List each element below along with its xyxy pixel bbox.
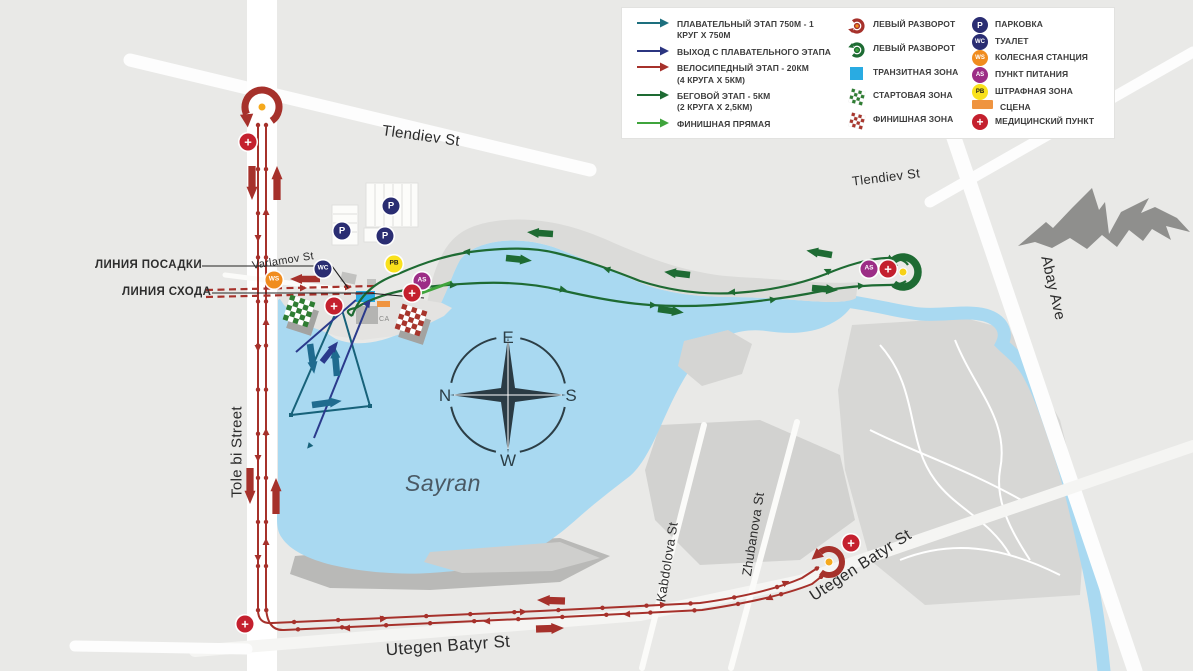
checker-icon xyxy=(848,112,866,130)
road-tlendiev-1 xyxy=(130,60,590,170)
legend-item-swim-exit: ВЫХОД С ПЛАВАТЕЛЬНОГО ЭТАПА xyxy=(636,45,848,58)
parking-lot xyxy=(332,205,358,245)
legend-item-start-zone: СТАРТОВАЯ ЗОНА xyxy=(848,88,972,106)
toilet-icon: WC xyxy=(972,34,988,50)
legend-item-label: МЕДИЦИНСКИЙ ПУНКТ xyxy=(995,114,1094,127)
scene-marker xyxy=(377,301,390,307)
road-tole-bi xyxy=(247,0,277,671)
legend-item-label: СЦЕНА xyxy=(1000,100,1031,113)
route-arrowhead xyxy=(520,608,527,615)
legend-item-label: КОЛЕСНАЯ СТАНЦИЯ xyxy=(995,50,1088,63)
square-icon xyxy=(848,65,866,83)
run-stage-arrow-icon xyxy=(636,89,670,101)
legend-item-label: ПУНКТ ПИТАНИЯ xyxy=(995,67,1068,80)
dismount-line-callout: ЛИНИЯ СХОДА xyxy=(122,286,210,298)
finish-straight-arrow-icon xyxy=(636,117,670,129)
aid-station-icon: AS xyxy=(972,67,988,83)
area-ca-label: CA xyxy=(379,316,390,323)
legend-item-left-uturn-run: ЛЕВЫЙ РАЗВОРОТ xyxy=(848,41,972,59)
legend-item-transit-zone: ТРАНЗИТНАЯ ЗОНА xyxy=(848,65,972,83)
parking-lot xyxy=(364,228,388,242)
swim-stage-arrow-icon xyxy=(636,17,670,29)
legend-route-column: ПЛАВАТЕЛЬНЫЙ ЭТАП 750М - 1 КРУГ X 750МВЫ… xyxy=(636,17,848,130)
legend-item-label: ТРАНЗИТНАЯ ЗОНА xyxy=(873,65,958,78)
course-map: E S W N Tlendiev StTlendiev StTole bi St… xyxy=(0,0,1193,671)
legend-zone-column: ЛЕВЫЙ РАЗВОРОТЛЕВЫЙ РАЗВОРОТТРАНЗИТНАЯ З… xyxy=(848,17,972,130)
legend-item-label: ФИНИШНАЯ ПРЯМАЯ xyxy=(677,117,770,130)
legend-item-label: ФИНИШНАЯ ЗОНА xyxy=(873,112,953,125)
legend-item-label: СТАРТОВАЯ ЗОНА xyxy=(873,88,953,101)
thick-route-arrow xyxy=(537,595,565,607)
compass-west: W xyxy=(500,451,516,470)
uturn-center-dot xyxy=(825,558,833,566)
building xyxy=(340,272,357,285)
checker-icon xyxy=(848,88,866,106)
route-arrowhead xyxy=(380,615,387,622)
legend-item-label: ШТРАФНАЯ ЗОНА xyxy=(995,84,1073,97)
uturn-red-icon xyxy=(848,17,866,35)
mountains-icon xyxy=(1018,188,1190,249)
legend-item-label: ЛЕВЫЙ РАЗВОРОТ xyxy=(873,17,955,30)
legend-item-penalty-zone: PBШТРАФНАЯ ЗОНА xyxy=(972,84,1108,100)
medical-icon: + xyxy=(972,114,988,130)
legend-item-finish-straight: ФИНИШНАЯ ПРЯМАЯ xyxy=(636,117,848,130)
legend-item-swim-stage: ПЛАВАТЕЛЬНЫЙ ЭТАП 750М - 1 КРУГ X 750М xyxy=(636,17,848,41)
uturn-center-dot xyxy=(258,103,266,111)
legend-item-label: ПЛАВАТЕЛЬНЫЙ ЭТАП 750М - 1 КРУГ X 750М xyxy=(677,17,814,41)
thick-route-arrow xyxy=(806,246,833,260)
route-arrowhead xyxy=(858,282,865,289)
uturn-green-icon xyxy=(848,41,866,59)
legend-item-label: БЕГОВОЙ ЭТАП - 5КМ (2 КРУГА X 2,5КМ) xyxy=(677,89,770,113)
wheel-station-icon: WS xyxy=(972,50,988,66)
legend-item-left-uturn-bike: ЛЕВЫЙ РАЗВОРОТ xyxy=(848,17,972,35)
scene-icon xyxy=(972,100,993,109)
compass-north: N xyxy=(439,386,451,405)
compass-south: S xyxy=(565,386,576,405)
route-arrowhead xyxy=(343,625,350,632)
legend-panel: ПЛАВАТЕЛЬНЫЙ ЭТАП 750М - 1 КРУГ X 750МВЫ… xyxy=(622,8,1114,138)
park-area xyxy=(838,318,1085,605)
legend-item-label: ТУАЛЕТ xyxy=(995,34,1029,47)
parking-lot xyxy=(366,183,418,227)
legend-item-label: ЛЕВЫЙ РАЗВОРОТ xyxy=(873,41,955,54)
mount-line-callout: ЛИНИЯ ПОСАДКИ xyxy=(95,259,200,271)
legend-item-toilet: WCТУАЛЕТ xyxy=(972,34,1108,50)
legend-item-label: ВЫХОД С ПЛАВАТЕЛЬНОГО ЭТАПА xyxy=(677,45,831,58)
legend-facility-column: PПАРКОВКАWCТУАЛЕТWSКОЛЕСНАЯ СТАНЦИЯASПУН… xyxy=(972,17,1108,130)
legend-item-bike-stage: ВЕЛОСИПЕДНЫЙ ЭТАП - 20КМ (4 КРУГА X 5КМ) xyxy=(636,61,848,85)
lake-name-label: Sayran xyxy=(405,470,481,497)
compass-east: E xyxy=(502,328,513,347)
legend-item-stage-scene: СЦЕНА xyxy=(972,100,1108,113)
legend-item-parking: PПАРКОВКА xyxy=(972,17,1108,33)
legend-item-wheel-station: WSКОЛЕСНАЯ СТАНЦИЯ xyxy=(972,50,1108,66)
legend-item-label: ПАРКОВКА xyxy=(995,17,1043,30)
parking-icon: P xyxy=(972,17,988,33)
legend-item-aid-station: ASПУНКТ ПИТАНИЯ xyxy=(972,67,1108,83)
legend-item-run-stage: БЕГОВОЙ ЭТАП - 5КМ (2 КРУГА X 2,5КМ) xyxy=(636,89,848,113)
penalty-zone-icon: PB xyxy=(972,84,988,100)
swim-exit-arrow-icon xyxy=(636,45,670,57)
road-utegen-west-stub xyxy=(75,646,247,649)
legend-item-finish-zone: ФИНИШНАЯ ЗОНА xyxy=(848,112,972,130)
bike-stage-arrow-icon xyxy=(636,61,670,73)
uturn-center-dot xyxy=(899,268,907,276)
legend-item-medical: +МЕДИЦИНСКИЙ ПУНКТ xyxy=(972,114,1108,130)
legend-item-label: ВЕЛОСИПЕДНЫЙ ЭТАП - 20КМ (4 КРУГА X 5КМ) xyxy=(677,61,809,85)
